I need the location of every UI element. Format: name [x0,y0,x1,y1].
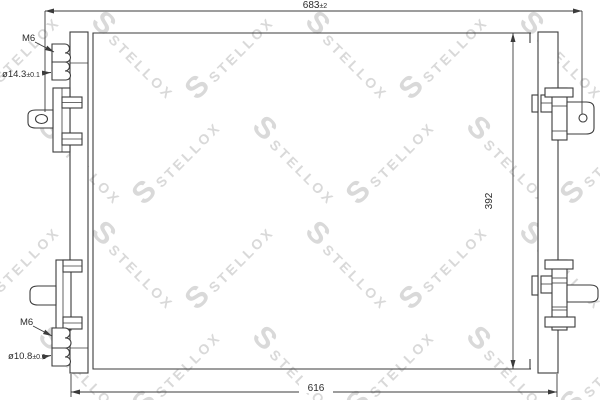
stellox-watermark: SSTELLOXSSTELLOXSSTELLOXSSTELLOXSSTELLOX… [0,5,600,400]
leader-top-diameter [44,73,51,74]
upper-diameter-fitting [52,62,71,80]
lower-thread-fitting [52,328,71,348]
bracket-gap-block [532,95,538,112]
upper-thread-fitting [52,44,71,62]
watermark-text: SSTELLOX [85,215,187,317]
label-bottom-thread: M6 [20,317,33,328]
bracket-mount-hole [36,115,48,124]
bracket-clip-top [545,88,573,97]
bracket-gap-block [532,276,538,295]
watermark-text: SSTELLOX [340,320,442,400]
lower-port-fittings [52,328,71,366]
watermark-text: SSTELLOX [299,215,401,317]
leader-bottom-diameter [48,356,51,357]
watermark-text: SSTELLOX [340,110,442,212]
label-bottom-diameter: ø10.8±0.1 [8,351,46,362]
watermark-text: SSTELLOX [299,5,401,107]
watermark-text: SSTELLOX [126,110,228,212]
bracket-arm [30,286,56,305]
dim-bottom-width-text: 616 [308,383,325,394]
watermark-text: SSTELLOX [554,320,600,400]
watermark-text: SSTELLOX [179,5,281,107]
label-top-thread: M6 [22,33,35,44]
watermark-text: SSTELLOX [246,110,348,212]
watermark-text: SSTELLOX [393,215,495,317]
watermark-text: SSTELLOX [85,5,187,107]
dim-side-height-text: 392 [484,192,495,209]
bracket-clip-top [545,260,573,269]
bracket-arm [567,285,598,302]
bracket-mount-hole [579,114,587,122]
label-top-diameter: ø14.3±0.1 [2,69,40,80]
watermark-text: SSTELLOX [126,320,228,400]
upper-port-fittings [52,44,71,80]
dim-top-width-text: 683±2 [303,0,328,11]
condenser-technical-drawing: SSTELLOXSSTELLOXSSTELLOXSSTELLOXSSTELLOX… [0,0,600,400]
dimension-annotations: 683±2 616 392 M6 ø14.3±0.1 M6 ø10.8±0.1 [2,0,582,397]
watermark-text: SSTELLOX [393,5,495,107]
lower-diameter-fitting [52,348,71,366]
watermark-text: SSTELLOX [179,215,281,317]
bracket-clip-bottom [545,317,575,327]
